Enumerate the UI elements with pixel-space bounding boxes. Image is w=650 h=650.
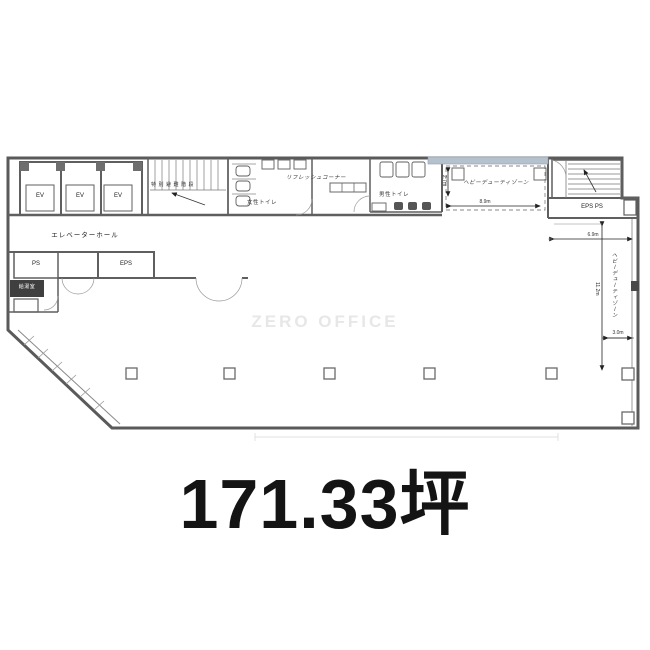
eps-label: EPS — [113, 261, 139, 267]
ps-label: PS — [26, 261, 46, 267]
ev-label-2: EV — [70, 193, 90, 199]
dim-zone-depth: 2.7m — [441, 175, 446, 186]
faint-dimension-line — [255, 433, 558, 441]
pantry-label: 給湯室 — [12, 285, 42, 290]
dim-right-depth: 11.2m — [594, 282, 599, 296]
outer-walls — [8, 158, 638, 428]
elevator-hall-label: エレベーターホール — [45, 233, 125, 240]
ev-label-3: EV — [108, 193, 128, 199]
ev-label-1: EV — [30, 193, 50, 199]
evac-stairs-label: 特別避難階段 — [151, 183, 196, 188]
area-title: 171.33坪 — [0, 448, 650, 549]
dim-zone-width: 8.9m — [470, 200, 500, 205]
watermark: ZERO OFFICE — [0, 312, 650, 332]
floor-plan-page: EV EV EV 特別避難階段 女性トイレ リフレッシュコーナー 男性トイレ ヘ… — [0, 0, 650, 650]
dim-right-width: 6.9m — [578, 233, 608, 238]
refresh-corner-label: リフレッシュコーナー — [285, 176, 347, 182]
heavy-duty-zone-label: ヘビーデューティゾーン — [452, 181, 540, 187]
eps-ps-label: EPS PS — [564, 204, 620, 210]
womens-toilet-label: 女性トイレ — [230, 201, 294, 207]
mens-toilet-label: 男性トイレ — [372, 193, 416, 199]
